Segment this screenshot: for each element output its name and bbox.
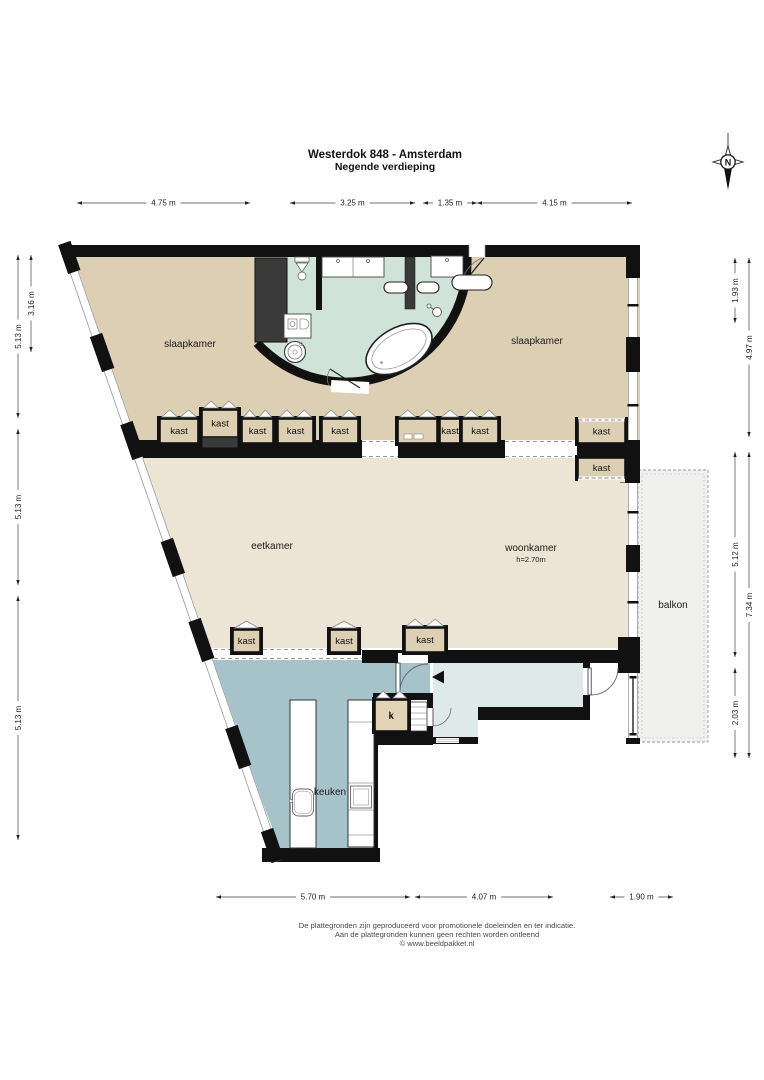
- kast-label: kast: [335, 636, 353, 647]
- dimension-v-12: 7.34 m: [745, 452, 754, 758]
- kitchen-island: [289, 700, 316, 848]
- dimension-label: 4.75 m: [151, 199, 176, 208]
- floorplan-svg: Westerdok 848 - Amsterdam Negende verdie…: [0, 0, 764, 1080]
- dimension-label: 5.13 m: [14, 324, 23, 349]
- kast-label: kast: [416, 635, 434, 646]
- top-wall: [62, 245, 640, 257]
- kast-label: kast: [471, 426, 489, 437]
- radiator-icon: [384, 282, 408, 293]
- compass-icon: N: [713, 133, 743, 190]
- room-label-slaapkamer-left: slaapkamer: [164, 339, 216, 350]
- page-subtitle: Negende verdieping: [335, 161, 435, 173]
- faucet-icon: [289, 799, 293, 803]
- dimension-h-3: 4.15 m: [477, 199, 632, 208]
- dimension-h-0: 4.75 m: [77, 199, 250, 208]
- kast-label: kast: [593, 463, 611, 474]
- tech-cabinet: [410, 702, 427, 731]
- dimension-v-10: 2.03 m: [731, 668, 740, 758]
- page-title: Westerdok 848 - Amsterdam: [308, 149, 462, 161]
- kast-label: kast: [238, 636, 256, 647]
- dimension-label: 2.03 m: [731, 700, 740, 725]
- vanity-sink-icon: [322, 257, 384, 277]
- dimension-label: 1.93 m: [731, 278, 740, 303]
- bathroom-door-opening: [331, 386, 369, 388]
- kast-closet: kast: [575, 455, 628, 483]
- radiator-icon: [452, 275, 492, 290]
- dimension-v-5: 5.13 m: [14, 429, 23, 585]
- kast-label: kast: [287, 426, 305, 437]
- dimension-label: 1.35 m: [438, 199, 463, 208]
- dimension-h-15: 1.90 m: [610, 893, 673, 902]
- washing-machine-icon: [285, 342, 306, 363]
- hallway-floor: [433, 663, 583, 737]
- dimension-label: 1.90 m: [629, 893, 654, 902]
- dimension-v-6: 5.13 m: [14, 596, 23, 840]
- dimension-label: 5.13 m: [14, 705, 23, 730]
- dimension-label: 4.15 m: [542, 199, 567, 208]
- floorplan-page: Westerdok 848 - Amsterdam Negende verdie…: [0, 0, 764, 1080]
- room-label-woonkamer: woonkamer: [504, 543, 557, 554]
- kast-closet: kast: [575, 416, 628, 447]
- footer-copyright: © www.beeldpakket.nl: [400, 939, 475, 948]
- dimension-label: 4.97 m: [745, 335, 754, 360]
- footer-disclaimer-2: Aan de plattegronden kunnen geen rechten…: [335, 930, 539, 939]
- entry-outside-area: [590, 663, 627, 738]
- dimension-label: 5.12 m: [731, 542, 740, 567]
- dimension-v-11: 4.97 m: [745, 258, 754, 437]
- room-label-keuken: keuken: [314, 787, 346, 798]
- kast-label: kast: [441, 426, 459, 437]
- dimension-v-7: 3.16 m: [27, 255, 36, 352]
- kast-label: kast: [170, 426, 188, 437]
- room-sublabel-woonkamer: h=2.70m: [516, 555, 545, 564]
- second-sink-icon: [431, 256, 463, 277]
- compass-north-label: N: [725, 158, 732, 168]
- dimension-h-2: 1.35 m: [423, 199, 477, 208]
- appliance-box-icon: [284, 314, 311, 338]
- dimension-label: 5.70 m: [301, 893, 326, 902]
- kast-closet: kast: [199, 401, 241, 448]
- kast-label: kast: [211, 419, 229, 430]
- room-label-eetkamer: eetkamer: [251, 541, 293, 552]
- dimension-label: 3.16 m: [27, 291, 36, 316]
- radiator-icon: [417, 282, 439, 293]
- room-label-slaapkamer-right: slaapkamer: [511, 336, 563, 347]
- dimension-v-4: 5.13 m: [14, 255, 23, 418]
- dimension-label: 7.34 m: [745, 592, 754, 617]
- toilet-compartment-wall: [316, 257, 322, 310]
- dimension-v-8: 1.93 m: [731, 258, 740, 323]
- kast-label: kast: [593, 427, 611, 438]
- kast-label: kast: [331, 426, 349, 437]
- bathroom-dark-closet: [255, 258, 287, 342]
- living-floor: [139, 458, 640, 648]
- dimension-label: 4.07 m: [472, 893, 497, 902]
- kitchen-counter: [348, 700, 374, 847]
- kast-label: kast: [249, 426, 267, 437]
- dimension-h-14: 4.07 m: [415, 893, 553, 902]
- dimension-h-1: 3.25 m: [290, 199, 415, 208]
- hall-threshold: [436, 738, 459, 743]
- room-label-balkon: balkon: [658, 600, 687, 611]
- dimension-label: 5.13 m: [14, 494, 23, 519]
- dimension-h-13: 5.70 m: [216, 893, 410, 902]
- dimension-label: 3.25 m: [340, 199, 365, 208]
- dimension-v-9: 5.12 m: [731, 452, 740, 657]
- footer-disclaimer-1: De plattegronden zijn geproduceerd voor …: [299, 921, 576, 930]
